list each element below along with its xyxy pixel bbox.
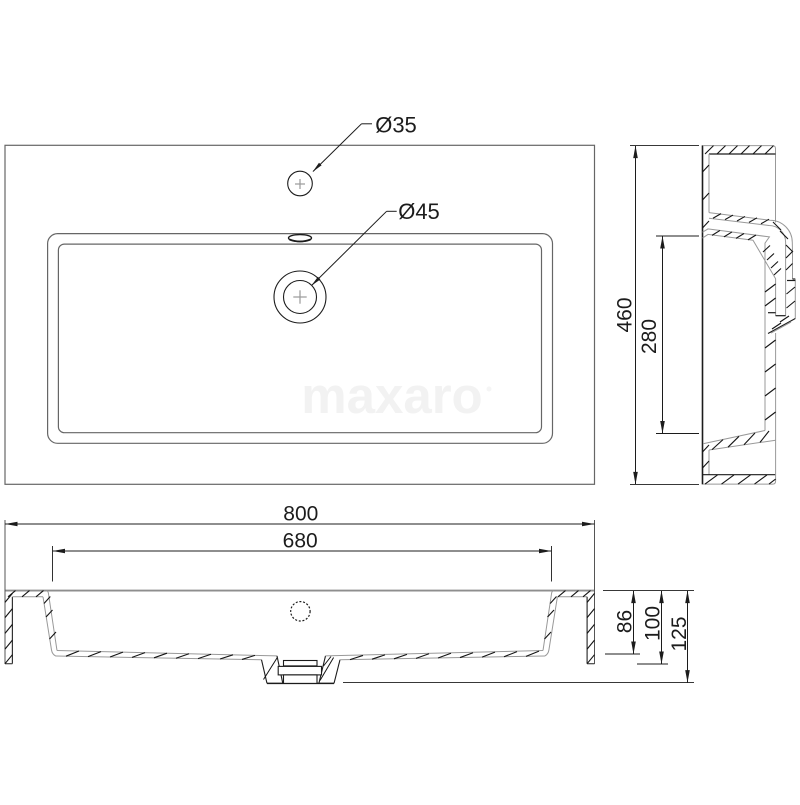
svg-text:280: 280: [638, 319, 661, 354]
svg-text:maxaro: maxaro: [301, 367, 482, 424]
svg-text:125: 125: [668, 616, 691, 651]
svg-text:100: 100: [642, 606, 665, 641]
svg-text:86: 86: [613, 610, 636, 633]
svg-text:Ø45: Ø45: [398, 199, 440, 224]
svg-text:800: 800: [283, 502, 318, 525]
svg-text:460: 460: [614, 297, 637, 332]
svg-text:680: 680: [283, 530, 318, 553]
svg-text:Ø35: Ø35: [375, 112, 417, 137]
